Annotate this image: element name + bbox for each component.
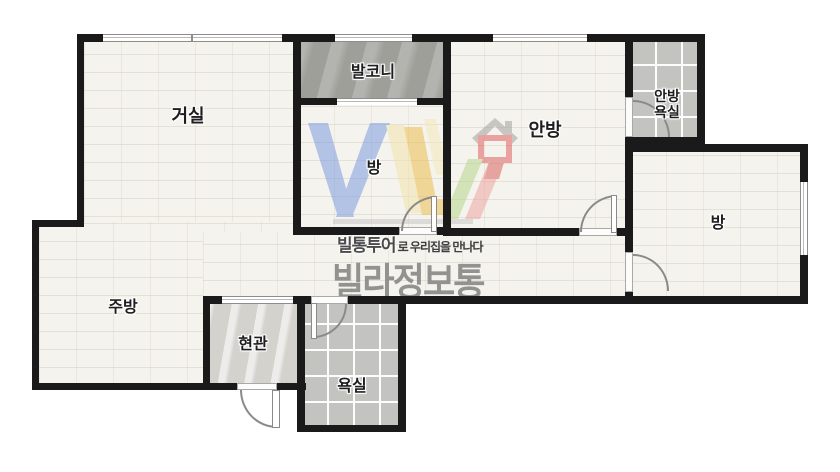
wall-segment <box>625 137 633 252</box>
wall-segment <box>800 144 808 182</box>
wall-segment <box>625 137 705 144</box>
wall-segment <box>398 297 406 432</box>
master-bath-label: 안방 욕실 <box>654 88 680 120</box>
center-room-label: 방 <box>367 154 382 178</box>
entrance-label: 현관 <box>238 330 267 354</box>
wall-segment <box>293 227 399 235</box>
master-bath-label-line2: 욕실 <box>654 104 680 120</box>
living-room-floor <box>84 40 297 235</box>
kitchen-label: 주방 <box>108 293 137 317</box>
wall-segment <box>800 255 808 304</box>
wall-segment <box>297 425 406 432</box>
balcony-label: 발코니 <box>351 58 395 82</box>
living-room-label: 거실 <box>171 102 204 128</box>
master-room-door-leaf <box>611 195 617 233</box>
wall-segment <box>697 34 705 144</box>
wall-segment <box>282 34 335 42</box>
master-bath-door-gap <box>625 97 633 137</box>
bathroom-door-leaf <box>311 303 317 339</box>
wall-segment <box>203 296 222 304</box>
wall-segment <box>32 383 210 390</box>
wall-segment <box>77 34 84 227</box>
entrance-door-gap <box>237 383 277 390</box>
wall-segment <box>203 383 237 390</box>
bathroom-label: 욕실 <box>337 372 366 396</box>
wall-segment <box>625 292 633 304</box>
wall-segment <box>348 296 808 304</box>
master-room-window <box>493 34 587 42</box>
master-bath-label-line1: 안방 <box>654 88 680 104</box>
wall-segment <box>412 34 493 42</box>
wall-segment <box>297 297 305 432</box>
wall-segment <box>293 296 311 304</box>
balcony-top-window <box>335 34 412 42</box>
entrance-door-leaf <box>272 390 280 428</box>
wall-segment <box>32 220 84 227</box>
entrance-top-window <box>222 296 293 304</box>
window-mullion <box>191 35 193 41</box>
wall-segment <box>625 34 633 97</box>
wall-segment <box>203 297 210 390</box>
floorplan-canvas: 빌통투어 로 우리집을 만나다 빌라정보통 <box>0 0 840 472</box>
wall-segment <box>32 220 39 390</box>
right-room-label: 방 <box>711 209 726 233</box>
wall-segment <box>293 98 337 105</box>
right-room-window <box>800 182 808 255</box>
balcony-inner-window <box>337 98 417 105</box>
wall-segment <box>443 34 451 235</box>
wall-segment <box>443 228 579 236</box>
wall-segment <box>587 34 705 42</box>
wall-segment <box>293 34 301 235</box>
master-room-label: 안방 <box>528 116 561 142</box>
right-room-door-gap <box>625 252 633 292</box>
center-room-door-leaf <box>431 196 437 232</box>
wall-segment <box>625 144 808 152</box>
